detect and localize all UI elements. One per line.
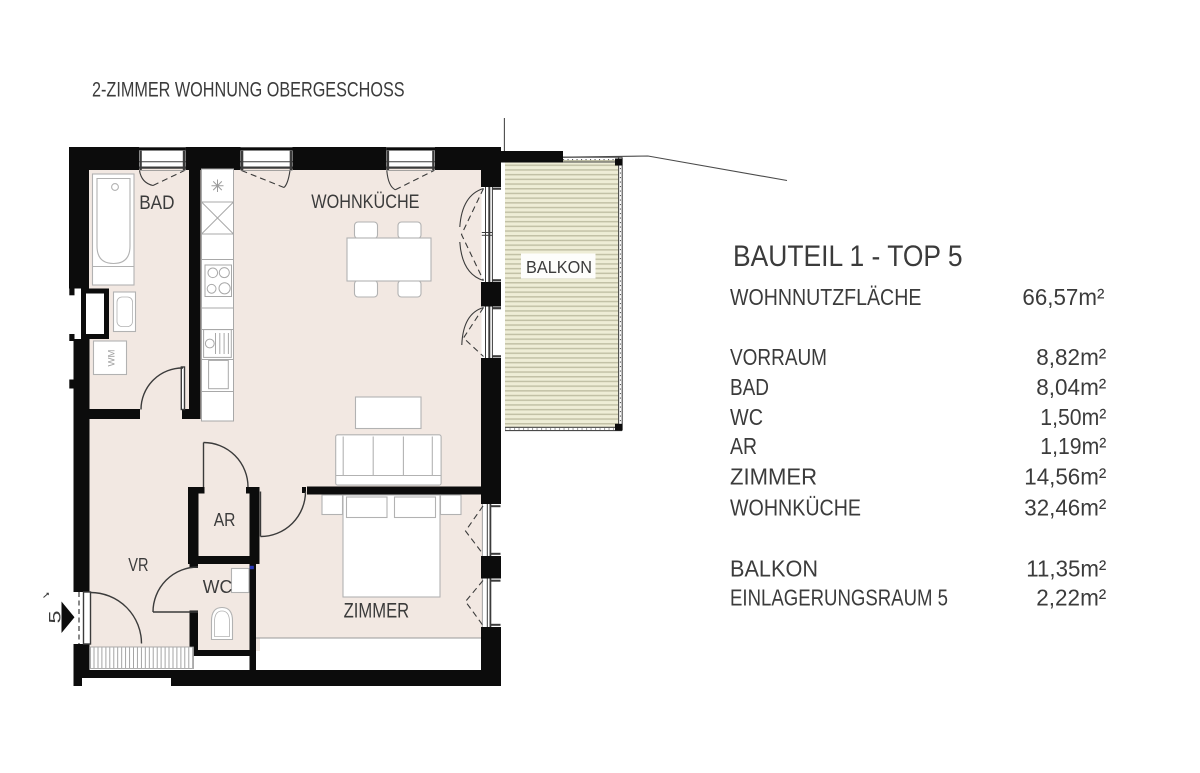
svg-text:WOHNNUTZFLÄCHE: WOHNNUTZFLÄCHE: [730, 284, 921, 310]
svg-text:1,50m²: 1,50m²: [1040, 404, 1106, 430]
svg-text:ZIMMER: ZIMMER: [730, 464, 817, 490]
svg-text:8,04m²: 8,04m²: [1036, 374, 1106, 400]
svg-text:14,56m²: 14,56m²: [1024, 464, 1106, 490]
svg-text:32,46m²: 32,46m²: [1024, 495, 1106, 521]
svg-text:WOHNKÜCHE: WOHNKÜCHE: [311, 191, 419, 213]
svg-text:BALKON: BALKON: [730, 556, 818, 582]
svg-text:AR: AR: [214, 510, 236, 530]
svg-text:BAD: BAD: [730, 374, 769, 400]
svg-text:11,35m²: 11,35m²: [1026, 556, 1106, 582]
svg-text:66,57m²: 66,57m²: [1022, 284, 1104, 310]
svg-text:5: 5: [47, 611, 65, 624]
svg-text:VR: VR: [128, 555, 148, 575]
svg-text:BAUTEIL 1 - TOP 5: BAUTEIL 1 - TOP 5: [733, 240, 963, 273]
svg-text:2-ZIMMER WOHNUNG OBERGESCHOSS: 2-ZIMMER WOHNUNG OBERGESCHOSS: [92, 78, 405, 102]
svg-text:WOHNKÜCHE: WOHNKÜCHE: [730, 495, 861, 521]
svg-text:WM: WM: [107, 350, 117, 367]
svg-text:EINLAGERUNGSRAUM 5: EINLAGERUNGSRAUM 5: [730, 585, 948, 611]
svg-text:BALKON: BALKON: [526, 257, 592, 277]
svg-text:WC: WC: [203, 576, 233, 597]
svg-text:WC: WC: [730, 404, 763, 430]
svg-text:8,82m²: 8,82m²: [1036, 344, 1106, 370]
svg-text:VORRAUM: VORRAUM: [730, 344, 827, 370]
svg-text:ZIMMER: ZIMMER: [344, 599, 410, 623]
svg-text:BAD: BAD: [139, 192, 174, 214]
svg-text:2,22m²: 2,22m²: [1036, 585, 1106, 611]
svg-text:1,19m²: 1,19m²: [1040, 433, 1106, 459]
svg-text:AR: AR: [730, 433, 757, 459]
